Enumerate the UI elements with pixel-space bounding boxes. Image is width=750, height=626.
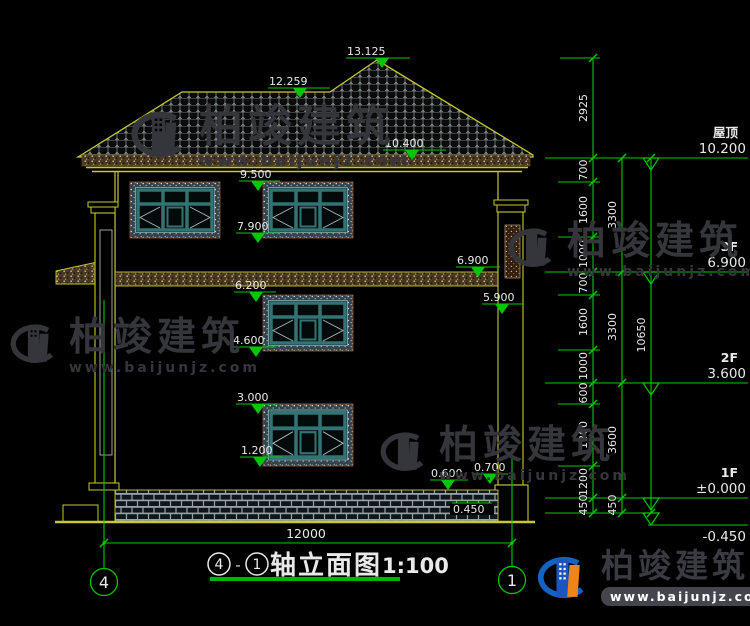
- dim-10650: 10650: [635, 318, 648, 353]
- dim-3600: 3600: [606, 426, 619, 454]
- level-2f-name: 2F: [721, 350, 738, 365]
- dim-2925: 2925: [577, 94, 590, 122]
- dim-3300a: 3300: [606, 201, 619, 229]
- spot-1200: 1.200: [241, 444, 273, 457]
- spot-3000: 3.000: [237, 391, 269, 404]
- window-2f: [263, 295, 353, 351]
- title-bubble-4-num: 4: [215, 557, 224, 573]
- drawing-title: 4 - 1 轴立面图 1:100: [208, 550, 449, 581]
- title-text: 轴立面图: [270, 550, 382, 581]
- level-roof-name: 屋顶: [713, 125, 739, 140]
- company-logo-brand: 柏竣建筑: [601, 549, 750, 584]
- dim-700a: 700: [577, 160, 590, 181]
- cad-elevation-drawing: 13.125 12.259 10.400 9.500 7.900 6.900 6…: [0, 0, 750, 626]
- spot-10400: 10.400: [385, 137, 424, 150]
- level-2f-value: 3.600: [707, 366, 746, 382]
- title-scale: 1:100: [382, 554, 449, 578]
- eave-fascia: [82, 155, 530, 166]
- spot-4600: 4.600: [233, 334, 265, 347]
- dim-700b: 700: [577, 273, 590, 294]
- dim-1800: 1800: [577, 421, 590, 449]
- dim-3300b: 3300: [606, 313, 619, 341]
- title-dash: -: [235, 558, 240, 574]
- spot-0450: 0.450: [453, 503, 485, 516]
- level-roof-value: 10.200: [699, 141, 746, 157]
- spot-0600: 0.600: [431, 467, 463, 480]
- spot-5900: 5.900: [483, 291, 515, 304]
- company-logo-url: www.baijunjz.com: [601, 587, 750, 606]
- building-elevation: [55, 60, 535, 522]
- dim-1600a: 1600: [577, 196, 590, 224]
- level-3f-value: 6.900: [707, 255, 746, 271]
- company-logo-icon: [533, 549, 593, 611]
- dim-1000b: 1000: [577, 352, 590, 380]
- window-3f-left: [130, 182, 220, 238]
- drawing-canvas: 13.125 12.259 10.400 9.500 7.900 6.900 6…: [0, 0, 750, 626]
- company-logo: 柏竣建筑 www.baijunjz.com: [533, 549, 750, 611]
- axis-4-number: 4: [99, 573, 109, 592]
- level-3f-name: 3F: [721, 239, 738, 254]
- level-neg450-value: -0.450: [702, 529, 746, 545]
- spot-7900: 7.900: [237, 220, 269, 233]
- dim-1600b: 1600: [577, 308, 590, 336]
- left-footing-step: [63, 505, 98, 522]
- title-bubble-1-num: 1: [253, 557, 262, 573]
- dim-450a: 450: [577, 495, 590, 516]
- cornice-lines: [86, 168, 528, 172]
- spot-6900: 6.900: [457, 254, 489, 267]
- spot-9500: 9.500: [240, 168, 272, 181]
- left-awning: [56, 262, 97, 284]
- window-3f-right: [263, 182, 353, 238]
- level-1f-value: ±0.000: [696, 481, 746, 497]
- dim-1000a: 1000: [577, 240, 590, 268]
- dim-600: 600: [577, 383, 590, 404]
- level-1f-name: 1F: [721, 465, 738, 480]
- overall-dim-value: 12000: [286, 526, 326, 541]
- axis-1-number: 1: [507, 571, 517, 590]
- spot-6200: 6.200: [235, 279, 267, 292]
- brick-plinth: [115, 490, 498, 522]
- dim-1200: 1200: [577, 468, 590, 496]
- floor-band-3f: [115, 272, 498, 286]
- spot-0700: 0.700: [474, 461, 506, 474]
- spot-13125: 13.125: [347, 45, 386, 58]
- dim-450b: 450: [606, 495, 619, 516]
- spot-12259: 12.259: [269, 75, 308, 88]
